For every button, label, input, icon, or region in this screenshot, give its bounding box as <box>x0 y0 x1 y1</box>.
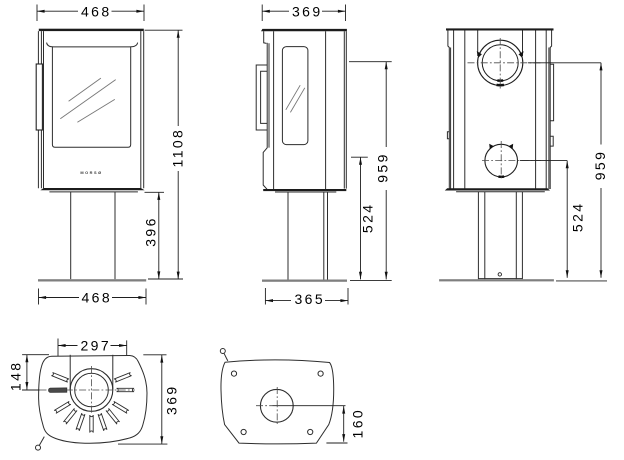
svg-text:1108: 1108 <box>169 128 185 168</box>
svg-text:369: 369 <box>292 4 323 20</box>
svg-text:468: 468 <box>81 4 112 20</box>
svg-text:524: 524 <box>360 203 376 234</box>
svg-text:468: 468 <box>82 290 113 306</box>
svg-text:160: 160 <box>350 408 366 439</box>
svg-text:369: 369 <box>163 384 179 415</box>
svg-text:365: 365 <box>295 291 326 307</box>
svg-text:524: 524 <box>569 202 585 233</box>
svg-text:396: 396 <box>142 216 158 247</box>
svg-text:MORSØ: MORSØ <box>80 170 102 175</box>
svg-text:959: 959 <box>592 150 608 181</box>
svg-text:959: 959 <box>374 152 390 183</box>
svg-text:297: 297 <box>81 338 112 354</box>
svg-text:148: 148 <box>7 361 23 392</box>
